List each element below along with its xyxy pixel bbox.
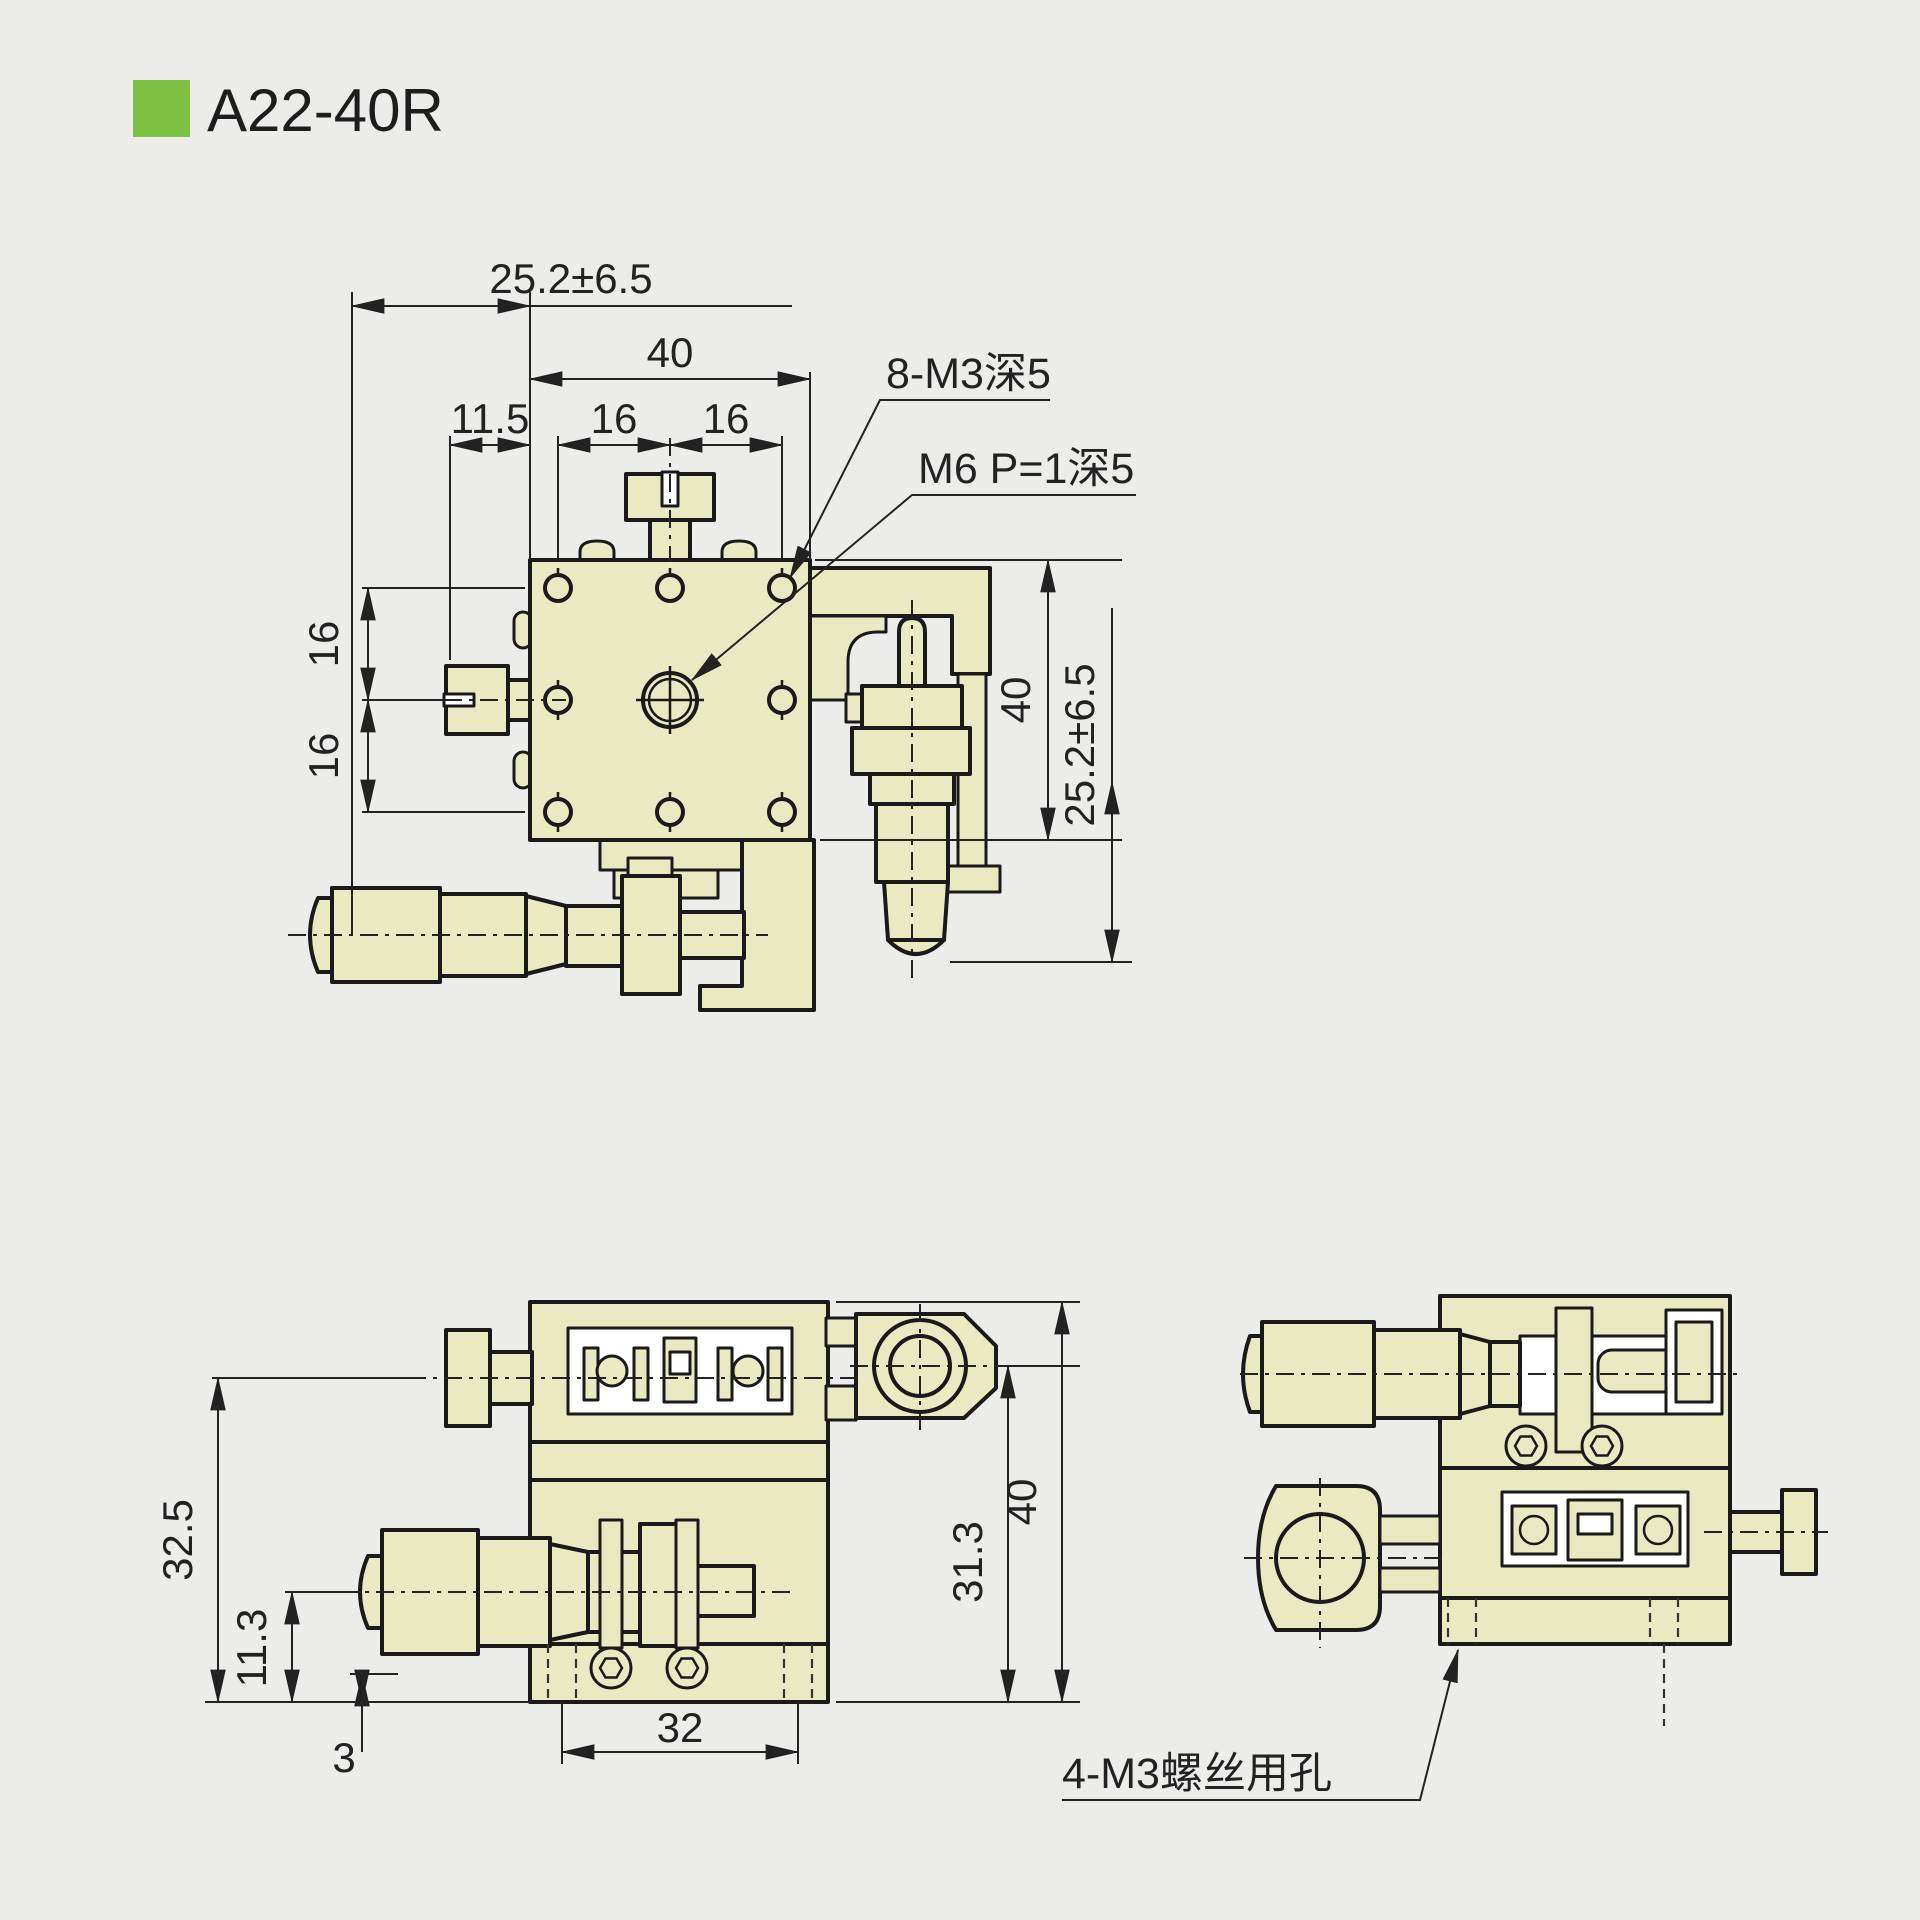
dim-base-step: 3 <box>332 1734 355 1781</box>
dim-travel-horizontal: 25.2±6.5 <box>489 255 652 302</box>
horizontal-micrometer <box>310 858 744 994</box>
side-view-body <box>1243 1296 1816 1726</box>
dim-pitch-v2: 16 <box>300 733 347 780</box>
title-accent-square <box>133 80 190 137</box>
label-mount-holes: 4-M3螺丝用孔 <box>1062 1750 1332 1798</box>
title-block: A22-40R <box>133 77 444 144</box>
label-tapped-holes: 8-M3深5 <box>886 350 1051 398</box>
bottom-view: 32.5 11.3 3 32 31.3 40 <box>154 1302 1080 1781</box>
label-center-thread: M6 P=1深5 <box>918 445 1134 493</box>
dim-width: 40 <box>647 329 694 376</box>
dim-pitch-v1: 16 <box>300 621 347 668</box>
dim-axis-height: 11.3 <box>228 1609 275 1688</box>
catalog-page: A22-40R <box>0 0 1920 1920</box>
dim-pitch-h2: 16 <box>703 395 750 442</box>
dim-height-upper: 31.3 <box>944 1521 991 1603</box>
engineering-drawing: A22-40R <box>0 0 1920 1920</box>
page-title: A22-40R <box>207 77 444 144</box>
dim-height: 40 <box>992 677 1039 724</box>
front-view: 25.2±6.5 40 11.5 16 16 16 16 40 25.2±6.5… <box>288 255 1136 1010</box>
dim-offset: 11.5 <box>451 395 530 442</box>
front-view-body <box>310 472 1000 1010</box>
bottom-view-body <box>360 1302 996 1702</box>
dim-travel-vertical: 25.2±6.5 <box>1056 663 1103 826</box>
dim-height-overall: 40 <box>998 1479 1045 1526</box>
base-plate <box>1440 1598 1730 1644</box>
dim-pitch-h1: 16 <box>591 395 638 442</box>
dim-hole-span: 32 <box>657 1704 704 1751</box>
side-view: 4-M3螺丝用孔 <box>1062 1296 1828 1800</box>
dim-height-total: 32.5 <box>154 1499 201 1581</box>
